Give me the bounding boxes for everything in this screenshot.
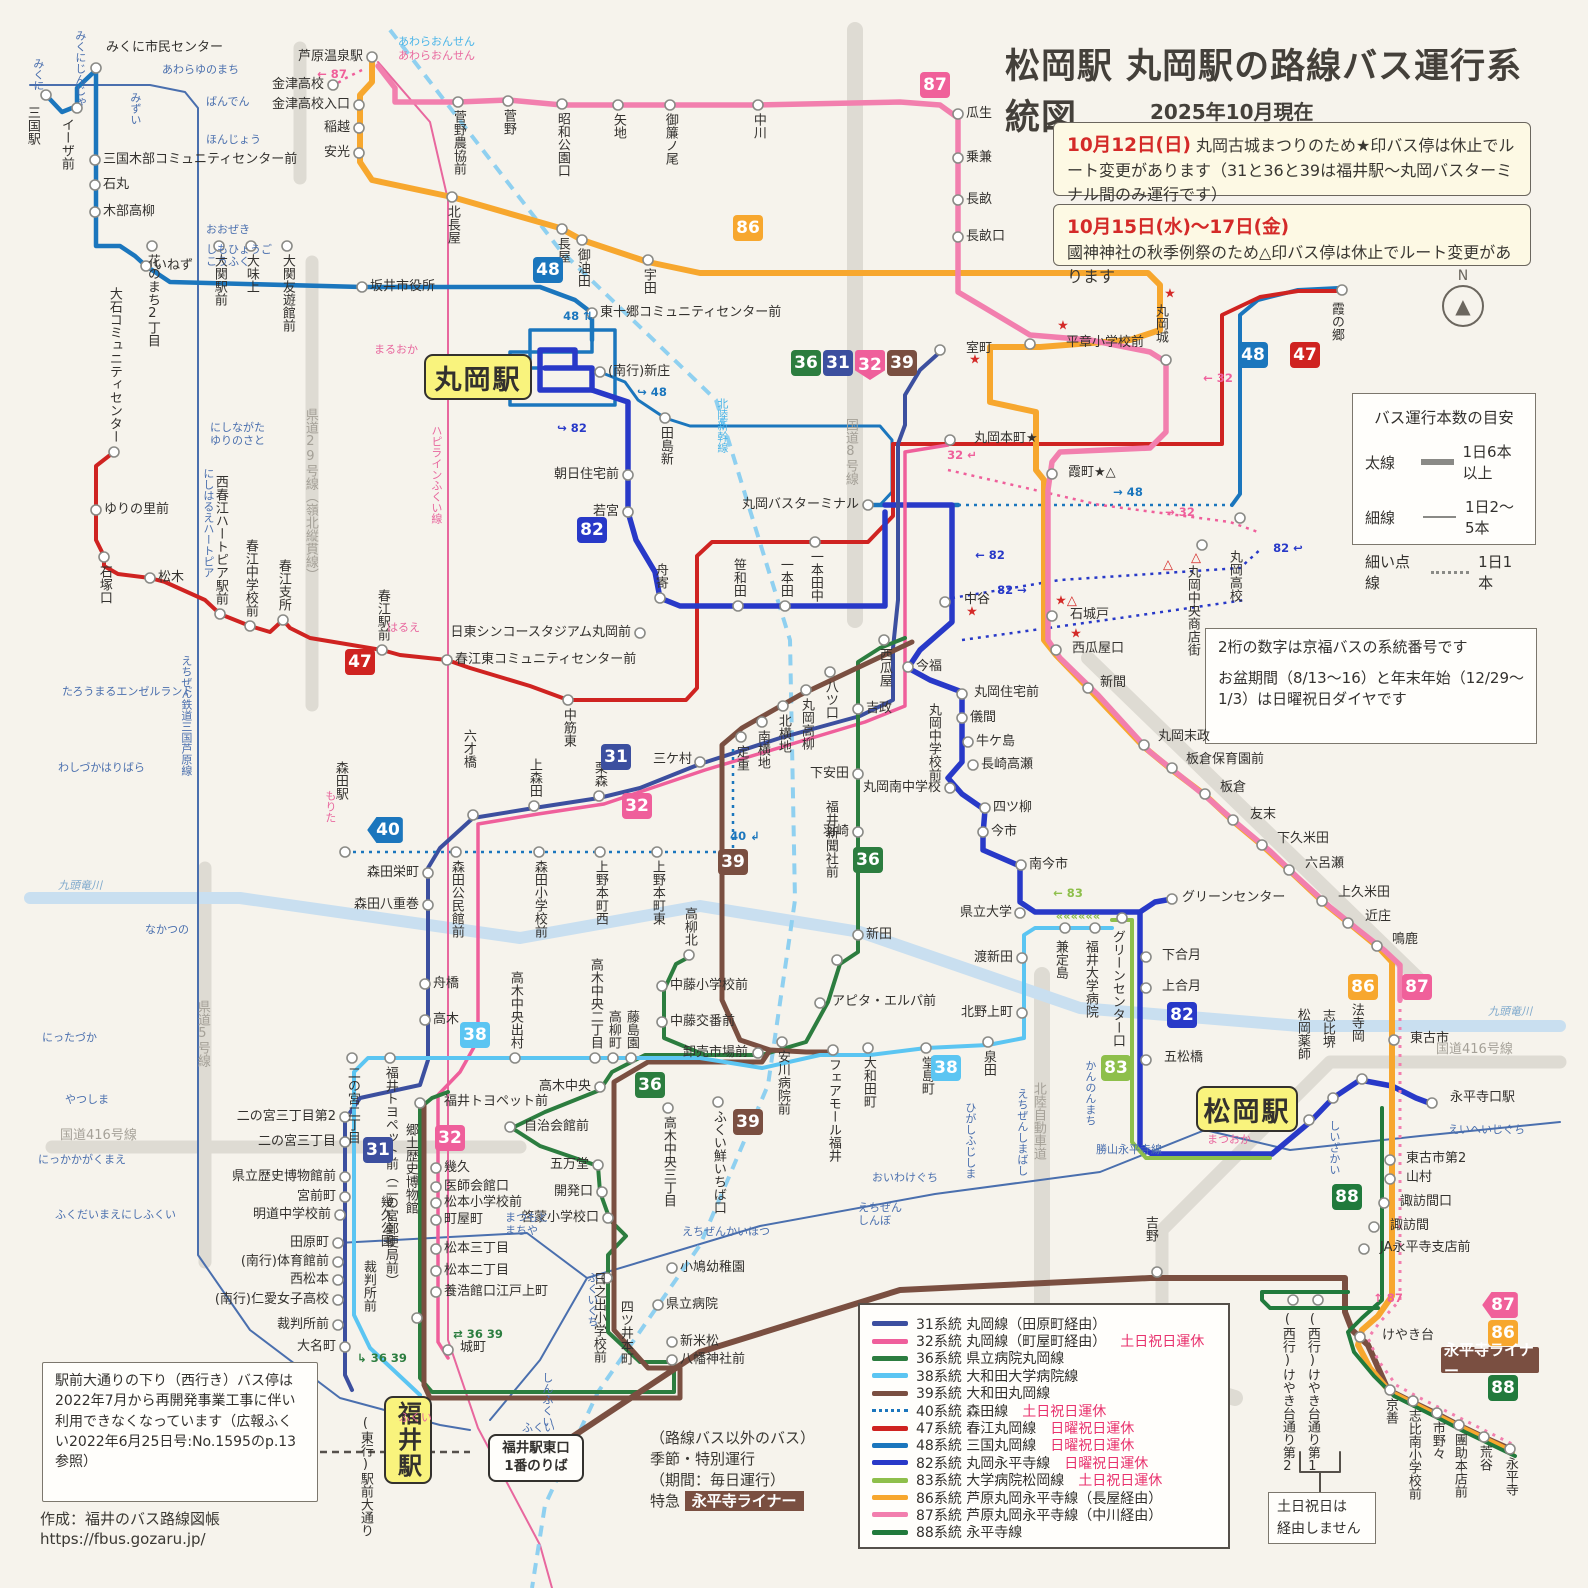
stop-label: 福井新聞社前 (823, 800, 837, 878)
stop-label: 牛ケ島 (976, 735, 1015, 749)
stop-dot (613, 100, 623, 110)
stop-dot (1427, 1098, 1437, 1108)
stop-label: 山村 (1406, 1171, 1432, 1185)
legend-swatch (872, 1321, 908, 1326)
route-badge-31: 31 (363, 1137, 393, 1163)
stop-label: 三国駅 (25, 106, 39, 145)
route-badge-32: 32 (435, 1125, 465, 1151)
legend-swatch (872, 1495, 908, 1500)
compass: N ▲ (1442, 268, 1484, 327)
minor-label: なかつの (145, 924, 189, 936)
stop-dot (1047, 469, 1057, 479)
minor-label: ハピラインふくい線 (430, 425, 442, 524)
roadworks-note: 駅前大通りの下り（西行き）バス停は2022年7月から再開発事業工事に伴い利用でき… (42, 1362, 318, 1502)
keifuku-note: 2桁の数字は京福バスの系統番号です お盆期間（8/13～16）と年末年始（12/… (1205, 628, 1537, 744)
stop-label: 法寺岡 (1349, 1003, 1363, 1042)
legend-row-39: 39系統 大和田丸岡線 (872, 1385, 1216, 1402)
stop-dot (333, 1257, 343, 1267)
stop-label: 県立大学 (960, 906, 1012, 920)
stop-dot (863, 1043, 873, 1053)
stop-label: 安光 (324, 146, 350, 160)
route-badge-36: 36 (791, 350, 821, 376)
legend-note: 土日祝日運休 (1120, 1331, 1204, 1351)
direction-arrow: 48 ⇅ (563, 309, 593, 323)
route-line (1232, 288, 1338, 505)
stop-label: 瓜生 (966, 107, 992, 121)
stop-dot (608, 1053, 618, 1063)
route-badge-83: 83 (1101, 1055, 1131, 1081)
route-badge-82: 82 (577, 517, 607, 543)
direction-arrow: ← 32 (1203, 371, 1233, 385)
minor-label: しもひょうご (206, 244, 272, 256)
stop-label: 北野上町 (961, 1006, 1013, 1020)
stop-label: 卸売市場前 (683, 1046, 748, 1060)
stop-dot (431, 1215, 441, 1225)
stop-dot (333, 1238, 343, 1248)
stop-dot (431, 1266, 441, 1276)
weekend-note-line2: 経由しません (1277, 1519, 1367, 1541)
stop-dot (594, 791, 604, 801)
stop-dot (953, 109, 963, 119)
stop-dot (333, 1295, 343, 1305)
frequency-cell: 太線 (1365, 452, 1412, 473)
compass-icon: ▲ (1442, 285, 1484, 327)
minor-label: はるえ (387, 622, 420, 634)
stop-dot (733, 601, 743, 611)
stop-dot (431, 1182, 441, 1192)
liner-note-line1: （路線バス以外のバス） (650, 1428, 815, 1449)
stop-dot (1228, 815, 1238, 825)
frequency-cell (1423, 516, 1456, 519)
stop-dot (529, 801, 539, 811)
minor-label: 県道29号線（嶺北縦貫線） (303, 408, 317, 581)
stop-label: 西春江ハートピア駅前 (213, 475, 227, 605)
minor-label: ゆりのさと (210, 435, 265, 447)
stop-label: 志比南小学校前 (1406, 1409, 1420, 1500)
stop-dot (1343, 918, 1353, 928)
stop-dot (1355, 1332, 1365, 1342)
stop-label: 高木中央 (539, 1080, 591, 1094)
stop-dot (978, 827, 988, 837)
direction-arrow: ↳ 36 39 (357, 1351, 407, 1365)
frequency-legend: バス運行本数の目安 太線1日6本以上細線1日2～5本細い点線1日1本 (1352, 393, 1536, 545)
stop-dot (423, 868, 433, 878)
stop-dot (652, 847, 662, 857)
stop-label: 二の宮三丁目 (258, 1135, 336, 1149)
stop-label: 市野々 (1430, 1421, 1444, 1460)
stop-dot (245, 621, 255, 631)
direction-arrow: ← 82 (975, 548, 1005, 562)
stop-label: 長崎高瀬 (981, 758, 1033, 772)
stop-label: イーザ前 (59, 118, 73, 170)
minor-label: ひがしふじしま (964, 1102, 976, 1179)
stop-dot (757, 717, 767, 727)
stop-dot (1304, 1115, 1314, 1125)
stop-dot (1141, 983, 1151, 993)
stop-dot (945, 783, 955, 793)
stop-label: 荒谷 (1477, 1445, 1491, 1471)
stop-label: 中筋東 (561, 708, 575, 747)
stop-dot (957, 689, 967, 699)
direction-arrow: ← 87 (317, 67, 347, 81)
stop-dot (1313, 1295, 1323, 1305)
stop-dot (1139, 740, 1149, 750)
stop-dot (451, 847, 461, 857)
stop-dot (447, 192, 457, 202)
stop-label: 丸岡城 (1153, 304, 1167, 343)
stop-dot (278, 615, 288, 625)
stop-label: 南横地 (755, 730, 769, 769)
minor-label: ふくい (522, 1422, 555, 1434)
stop-dot (1017, 1008, 1027, 1018)
liner-note-line2: 季節・特別運行 (650, 1449, 815, 1470)
stop-label: (南行)仁愛女子高校 (215, 1293, 329, 1307)
river-line (30, 898, 1560, 1026)
minor-label: あわらおんせん (398, 36, 475, 48)
stop-label: グリーンセンター口 (1110, 930, 1124, 1047)
stop-dot (957, 713, 967, 723)
legend-row-88: 88系統 永平寺線 (872, 1524, 1216, 1541)
frequency-cell (1431, 571, 1469, 574)
route-badge-31: 31 (601, 744, 631, 770)
route-badge-36: 36 (853, 847, 883, 873)
minor-label: わしづかはりばら (58, 762, 145, 774)
stop-label: 友末 (1250, 808, 1276, 822)
stop-dot (145, 573, 155, 583)
stop-dot (340, 847, 350, 857)
stop-label: 小鳩幼稚園 (680, 1261, 745, 1275)
stop-dot (695, 757, 705, 767)
legend-row-40: 40系統 森田線土日祝日運休 (872, 1402, 1216, 1419)
minor-label: まちや (505, 1225, 538, 1237)
stop-label: 下安田 (810, 767, 849, 781)
stop-label: 六才橋 (461, 729, 475, 768)
stop-dot (935, 345, 945, 355)
stop-label: 坂井市役所 (370, 280, 435, 294)
stop-dot (968, 760, 978, 770)
legend-swatch (872, 1373, 908, 1378)
minor-label: まつもと (505, 1212, 549, 1224)
direction-arrow: → 48 (1113, 485, 1143, 499)
route-badge-82: 82 (1167, 1002, 1197, 1028)
minor-label: まつおか (1207, 1134, 1251, 1146)
stop-dot (983, 1037, 993, 1047)
stop-label: 森田小学校前 (532, 860, 546, 938)
legend-row-48: 48系統 三国丸岡線日曜祝日運休 (872, 1437, 1216, 1454)
stop-label: 明道中学校前 (253, 1208, 331, 1222)
stop-dot (340, 1172, 350, 1182)
stop-dot (595, 847, 605, 857)
stop-label: 幾久 (444, 1161, 470, 1175)
stop-label: 今福 (916, 660, 942, 674)
stop-dot (1090, 923, 1100, 933)
weekend-note: 土日祝日は 経由しません (1268, 1492, 1376, 1544)
stop-dot (657, 1017, 667, 1027)
route-badge-87: 87 (920, 72, 950, 98)
frequency-row: 太線1日6本以上 (1365, 441, 1523, 483)
stop-dot (1167, 894, 1177, 904)
route-badge-88: 88 (1332, 1184, 1362, 1210)
stop-dot (431, 1163, 441, 1173)
stop-label: 丸岡中学校前 (926, 703, 940, 781)
stop-dot (90, 207, 100, 217)
stop-label: 吉野 (1143, 1216, 1157, 1242)
stop-dot (1385, 1385, 1395, 1395)
bus-route-map: 松岡駅 丸岡駅の路線バス運行系統図 2025年10月現在 10月12日(日) 丸… (0, 0, 1588, 1588)
route-line (540, 350, 592, 390)
stop-dot (853, 930, 863, 940)
stop-label: 長畝 (966, 193, 992, 207)
stop-label: 自治会館前 (524, 1120, 589, 1134)
stop-dot (577, 235, 587, 245)
stop-label: 朝日住宅前 (554, 468, 619, 482)
stop-dot (825, 667, 835, 677)
stop-dot (635, 628, 645, 638)
stop-label: 西松本 (290, 1273, 329, 1287)
stop-label: JA永平寺支店前 (1380, 1241, 1471, 1255)
stop-label: 五万堂 (550, 1158, 589, 1172)
stop-label: 新田 (866, 928, 892, 942)
direction-arrow: ← 83 (1053, 886, 1083, 900)
legend-row-32: 32系統 丸岡線（町屋町経由）土日祝日運休 (872, 1332, 1216, 1349)
minor-label: えいへいじぐち (1448, 1124, 1525, 1136)
stop-label: (東行)駅前大通り (358, 1416, 372, 1537)
route-badge-39: 39 (733, 1109, 763, 1135)
stop-dot (853, 827, 863, 837)
stop-dot (1337, 285, 1347, 295)
frequency-cell: 細線 (1365, 507, 1414, 528)
stop-dot (443, 1345, 453, 1355)
stop-label: 昭和公園口 (555, 112, 569, 177)
minor-label: しんふくい (541, 1372, 553, 1427)
stop-dot (431, 1287, 441, 1297)
stop-label: 北横地 (776, 714, 790, 753)
stop-dot (1389, 1035, 1399, 1045)
stop-dot (623, 507, 633, 517)
minor-label: ほんじょう (206, 134, 261, 146)
closure-marker: ★ (1057, 319, 1069, 334)
stop-label: 城町 (460, 1341, 486, 1355)
stop-dot (91, 505, 101, 515)
stop-label: 森田公民館前 (449, 860, 463, 938)
stop-dot (1051, 645, 1061, 655)
stop-dot (736, 732, 746, 742)
stop-dot (1328, 1093, 1338, 1103)
route-badge-38: 38 (460, 1022, 490, 1048)
frequency-cell (1421, 459, 1453, 465)
stop-label: 新米松 (680, 1335, 719, 1349)
stop-dot (357, 282, 367, 292)
direction-arrow: ↑ 87 (1373, 1291, 1403, 1305)
stop-label: 儀間 (970, 711, 996, 725)
stop-dot (534, 847, 544, 857)
stop-label: 矢地 (611, 113, 625, 139)
stop-label: 松木 (158, 571, 184, 585)
stop-label: 長畝口 (966, 230, 1005, 244)
stop-dot (423, 900, 433, 910)
stop-dot (340, 1192, 350, 1202)
stop-dot (684, 950, 694, 960)
fukui-east-line2: 1番のりば (504, 1458, 567, 1476)
stop-dot (1017, 953, 1027, 963)
stop-dot (420, 979, 430, 989)
frequency-cell: 1日1本 (1478, 551, 1523, 593)
roadworks-note-text: 駅前大通りの下り（西行き）バス停は2022年7月から再開発事業工事に伴い利用でき… (55, 1373, 296, 1470)
stop-dot (1015, 908, 1025, 918)
stop-dot (667, 1355, 677, 1365)
stop-label: 高木中央二丁目 (588, 958, 602, 1049)
closure-marker: △ (1163, 558, 1173, 573)
stop-dot (801, 685, 811, 695)
stop-dot (713, 1097, 723, 1107)
minor-label: みずい (129, 92, 141, 125)
stop-label: 板倉 (1220, 781, 1246, 795)
legend-swatch (872, 1409, 908, 1412)
stop-label: 三国木部コミュニティセンター前 (103, 153, 297, 167)
stop-label: 兼定島 (1053, 940, 1067, 979)
stop-label: 大和田町 (861, 1056, 875, 1108)
minor-label: あわらおんせん (398, 50, 475, 62)
stop-dot (354, 100, 364, 110)
stop-dot (90, 155, 100, 165)
stop-label: 開発口 (554, 1185, 593, 1199)
stop-label: 丸岡高校 (1227, 550, 1241, 602)
stop-label: 県立歴史博物館前 (232, 1170, 336, 1184)
stop-label: 上野本町東 (650, 860, 664, 925)
stop-dot (1083, 683, 1093, 693)
stop-dot (1372, 941, 1382, 951)
stop-dot (1505, 1444, 1515, 1454)
stop-label: 芦原温泉駅 (298, 50, 363, 64)
minor-label: あわらゆのまち (162, 64, 239, 76)
stop-label: 西瓜屋 (877, 648, 891, 687)
as-of-date: 2025年10月現在 (1150, 96, 1314, 125)
stop-dot (1141, 952, 1151, 962)
legend-swatch (872, 1339, 908, 1344)
weekend-note-line1: 土日祝日は (1277, 1497, 1367, 1519)
stop-label: 田島新 (658, 426, 672, 465)
minor-label: 勝山永平寺線 (1096, 1144, 1162, 1156)
stop-label: 永平寺口駅 (1450, 1091, 1515, 1105)
stop-dot (1357, 1074, 1367, 1084)
stop-label: 木部高柳 (103, 205, 155, 219)
minor-label: にっかかがくまえ (38, 1154, 126, 1166)
stop-label: 南今市 (1029, 858, 1068, 872)
stop-dot (1152, 1267, 1162, 1277)
stop-label: 四ツ井本町 (618, 1300, 632, 1365)
legend-swatch (872, 1356, 908, 1361)
stop-label: 高柳北 (682, 907, 696, 946)
stop-dot (1161, 355, 1171, 365)
legend-swatch (872, 1391, 908, 1396)
minor-label: 国道416号線 (60, 1129, 137, 1143)
closure-marker: ★ (1070, 627, 1082, 642)
stop-dot (663, 1103, 673, 1113)
minor-label: にしながた (210, 422, 265, 434)
direction-arrow: 32 ↵ (947, 448, 977, 462)
stop-dot (597, 1187, 607, 1197)
stop-label: グリーンセンター (1182, 891, 1285, 905)
stop-dot (778, 701, 788, 711)
stop-label: 石塚口 (97, 565, 111, 604)
stop-label: 医師会館口 (444, 1180, 509, 1194)
stop-dot (510, 1053, 520, 1063)
stop-label: 一本田 (778, 558, 792, 597)
stop-dot (963, 737, 973, 747)
stop-dot (468, 810, 478, 820)
stop-dot (863, 500, 873, 510)
stop-label: 霞の郷 (1329, 302, 1343, 341)
stop-dot (657, 981, 667, 991)
stop-label: 大石コミュニティセンター (107, 287, 121, 443)
stop-label: (西行)けやき台通り第2 (1280, 1312, 1294, 1474)
minor-label: やつしま (65, 1094, 109, 1106)
legend-swatch (872, 1478, 908, 1483)
stop-label: 京善 (1383, 1398, 1397, 1424)
legend-row-38: 38系統 大和田大学病院線 (872, 1367, 1216, 1384)
stop-dot (1379, 1198, 1389, 1208)
stop-dot (385, 1053, 395, 1063)
closure-marker: ★ (1164, 287, 1176, 302)
stop-label: 宮前町 (297, 1190, 336, 1204)
route-badge-32: 32 (622, 793, 652, 819)
stop-label: (南行)新庄 (608, 365, 670, 379)
stop-label: 丸岡バスターミナル (742, 498, 859, 512)
stop-dot (415, 1098, 425, 1108)
stop-label: アピタ・エルパ前 (832, 995, 936, 1009)
legend-swatch (872, 1512, 908, 1517)
stop-dot (595, 367, 605, 377)
minor-label: みくに (32, 58, 44, 91)
stop-label: 藤島園 (624, 1010, 638, 1049)
direction-arrow: 82 → (997, 583, 1027, 597)
stop-label: 霞町★△ (1068, 466, 1116, 480)
minor-label: おいわけぐち (872, 1172, 938, 1184)
minor-label: ふくいぐち (586, 1272, 598, 1327)
closure-marker: ★ (966, 605, 978, 620)
legend-row-36: 36系統 県立病院丸岡線 (872, 1350, 1216, 1367)
stop-dot (945, 435, 955, 445)
stop-label: 丸岡高柳 (799, 698, 813, 750)
stop-label: 日東シンコースタジアム丸岡前 (451, 626, 631, 640)
legend-row-83: 83系統 大学病院松岡線土日祝日運休 (872, 1472, 1216, 1489)
stop-label: 裁判所前 (361, 1260, 375, 1312)
stop-label: 四ツ柳 (993, 801, 1032, 815)
stop-label: 大関友遊館前 (280, 254, 294, 332)
stop-label: 春江中学校前 (243, 539, 257, 617)
stop-label: 森田八重巻 (354, 898, 419, 912)
stop-dot (505, 1122, 515, 1132)
stop-dot (953, 195, 963, 205)
route-badge-31: 31 (823, 350, 853, 376)
minor-label: えちぜんしまばし (1016, 1088, 1028, 1176)
stop-label: 中藤小学校前 (670, 979, 748, 993)
route-badge-永平寺ライナー: 永平寺ライナー (1441, 1347, 1539, 1373)
frequency-legend-title: バス運行本数の目安 (1365, 406, 1523, 428)
stop-dot (147, 241, 157, 251)
stop-dot (215, 609, 225, 619)
minor-label: 九頭竜川 (1488, 1006, 1532, 1018)
stop-label: 團助本店前 (1452, 1433, 1466, 1498)
stop-dot (1235, 513, 1245, 523)
stop-label: 東十郷コミュニティセンター前 (600, 306, 781, 320)
compass-label: N (1442, 268, 1484, 284)
stop-dot (1117, 913, 1127, 923)
legend-row-47: 47系統 春江丸岡線日曜祝日運休 (872, 1419, 1216, 1436)
frequency-cell: 細い点線 (1365, 551, 1422, 593)
minor-label: えちぜんかいほつ (682, 1226, 770, 1238)
direction-arrow: 40 ↲ (730, 829, 760, 843)
